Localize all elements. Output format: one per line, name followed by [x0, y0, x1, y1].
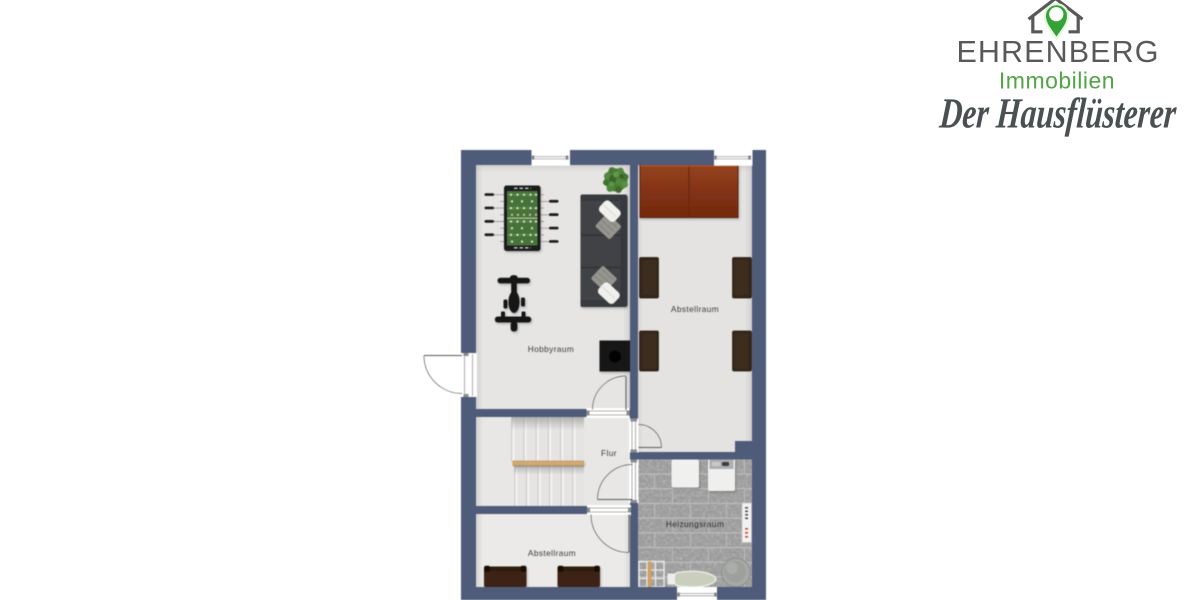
svg-text:EHRENBERG: EHRENBERG [956, 35, 1159, 69]
svg-text:Der Hausflüsterer: Der Hausflüsterer [937, 90, 1178, 138]
